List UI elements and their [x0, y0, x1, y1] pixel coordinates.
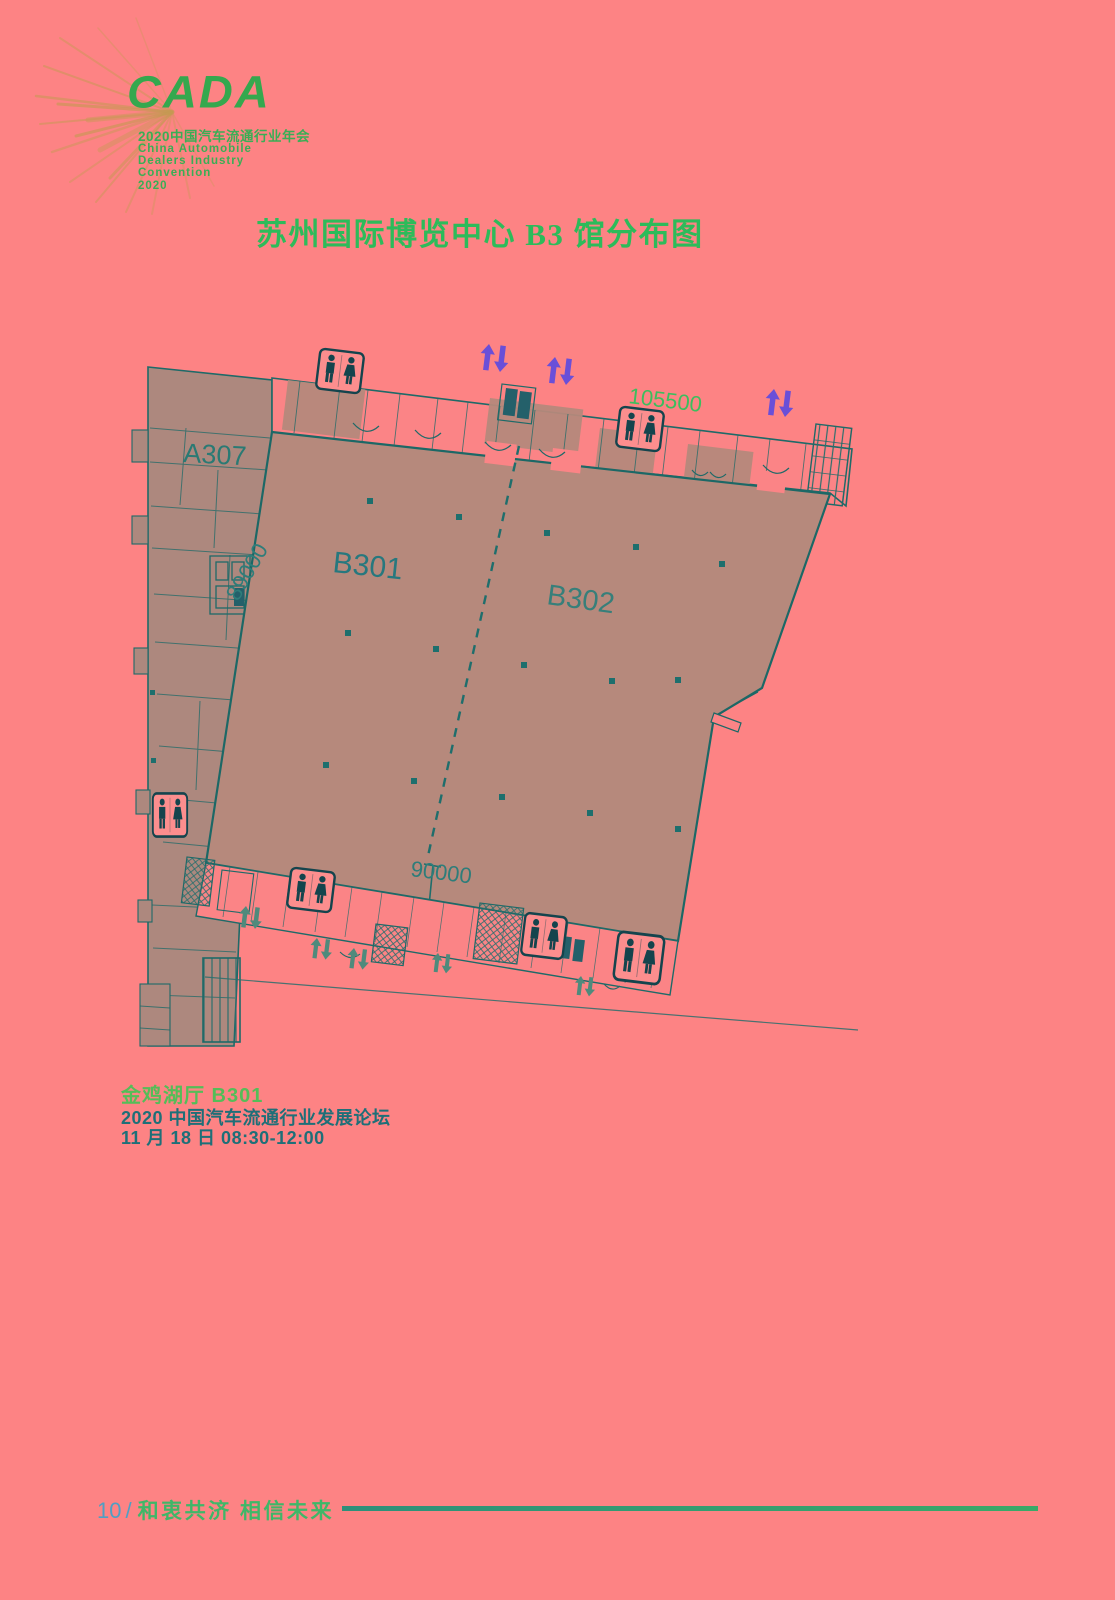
restroom-icon [616, 406, 665, 451]
page-number-separator: / [121, 1498, 137, 1523]
restroom-icon [613, 931, 665, 984]
escalator-arrows-icon [479, 343, 511, 373]
main-hall: B301 B302 A307 [183, 423, 830, 941]
session-schedule: 11 月 18 日 08:30-12:00 [121, 1124, 325, 1150]
footer-divider-line [342, 1506, 1038, 1511]
entrance-arrows-icon [309, 937, 333, 960]
footer: 10/和衷共济 相信未来 [97, 1495, 334, 1525]
stairs-icon [203, 958, 240, 1042]
footer-slogan: 和衷共济 相信未来 [138, 1500, 334, 1523]
right-edge-door [711, 713, 741, 732]
restroom-icon [287, 867, 336, 912]
restroom-icon [316, 348, 365, 393]
entrance-arrows-icon [346, 947, 370, 970]
floor-plan: B301 B302 A307 [0, 0, 1115, 1600]
restroom-icon [521, 913, 568, 960]
main-hall-outline [206, 432, 830, 941]
page-root: CADA 2020中国汽车流通行业年会 China Automobile Dea… [0, 0, 1115, 1600]
room-label-a307: A307 [183, 438, 248, 471]
page-number: 10 [97, 1498, 121, 1523]
plan-baseline-line [205, 977, 858, 1030]
hatch-stairs-icon [181, 857, 214, 906]
escalator-arrows-icon [545, 356, 577, 386]
escalator-arrows-icon [764, 388, 796, 418]
restroom-icon [153, 793, 187, 836]
hatch-stairs-icon [371, 924, 407, 966]
hatch-stairs-icon [473, 903, 523, 964]
